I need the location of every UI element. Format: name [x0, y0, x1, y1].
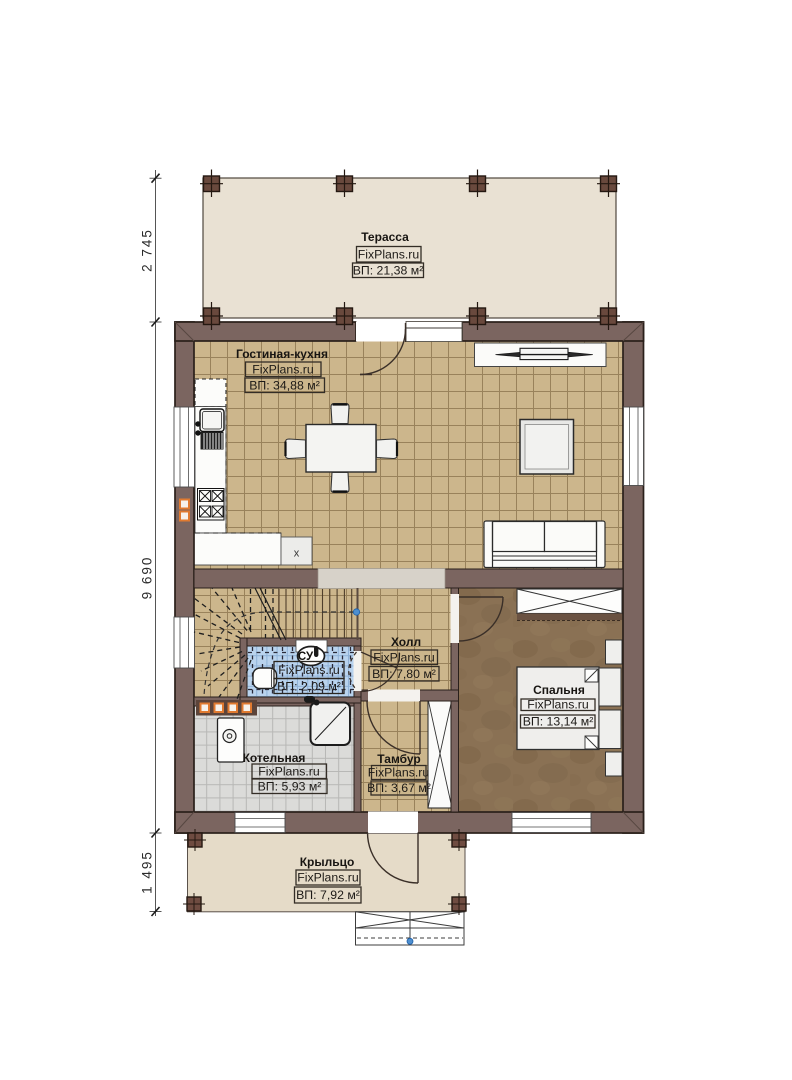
svg-text:ВП: 5,93 м²: ВП: 5,93 м² — [258, 780, 322, 794]
svg-text:ВП: 7,80 м²: ВП: 7,80 м² — [372, 667, 436, 681]
svg-text:ВП: 7,92 м²: ВП: 7,92 м² — [296, 888, 360, 902]
svg-text:Крыльцо: Крыльцо — [300, 855, 355, 869]
svg-text:FixPlans.ru: FixPlans.ru — [368, 766, 430, 780]
svg-text:FixPlans.ru: FixPlans.ru — [373, 651, 435, 665]
svg-text:ВП: 2,09 м²: ВП: 2,09 м² — [277, 680, 341, 694]
svg-text:FixPlans.ru: FixPlans.ru — [358, 248, 420, 262]
svg-text:FixPlans.ru: FixPlans.ru — [258, 765, 320, 779]
svg-text:9 690: 9 690 — [140, 556, 155, 600]
svg-text:Терасса: Терасса — [361, 230, 409, 244]
svg-text:ВП: 34,88 м²: ВП: 34,88 м² — [249, 379, 320, 393]
svg-text:ВП: 13,14 м²: ВП: 13,14 м² — [523, 715, 594, 729]
svg-text:FixPlans.ru: FixPlans.ru — [297, 871, 359, 885]
svg-text:ВП: 3,67 м²: ВП: 3,67 м² — [367, 781, 431, 795]
svg-text:1 495: 1 495 — [140, 850, 155, 894]
svg-text:Спальня: Спальня — [533, 683, 585, 697]
svg-text:2 745: 2 745 — [140, 228, 155, 272]
svg-text:FixPlans.ru: FixPlans.ru — [527, 698, 589, 712]
svg-text:Тамбур: Тамбур — [377, 752, 421, 766]
svg-text:x: x — [294, 548, 300, 560]
svg-text:Холл: Холл — [391, 635, 421, 649]
svg-text:Котельная: Котельная — [243, 751, 306, 765]
svg-text:ВП: 21,38 м²: ВП: 21,38 м² — [353, 264, 424, 278]
svg-text:Гостиная-кухня: Гостиная-кухня — [236, 347, 328, 361]
svg-text:FixPlans.ru: FixPlans.ru — [252, 363, 314, 377]
svg-text:FixPlans.ru: FixPlans.ru — [278, 663, 340, 677]
